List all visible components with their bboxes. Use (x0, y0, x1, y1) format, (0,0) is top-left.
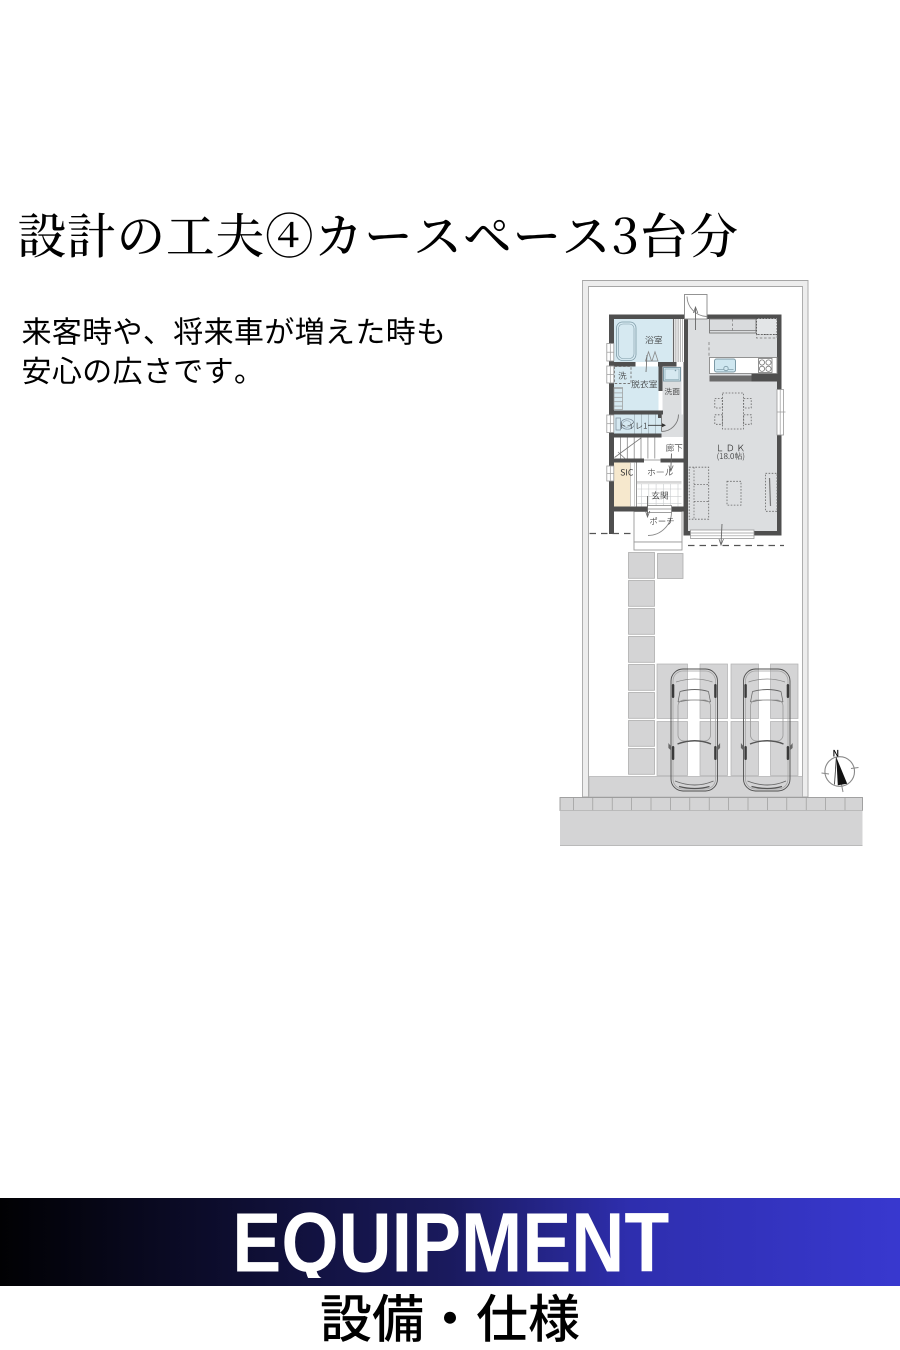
svg-text:EQUIPMENT: EQUIPMENT (232, 1196, 669, 1290)
